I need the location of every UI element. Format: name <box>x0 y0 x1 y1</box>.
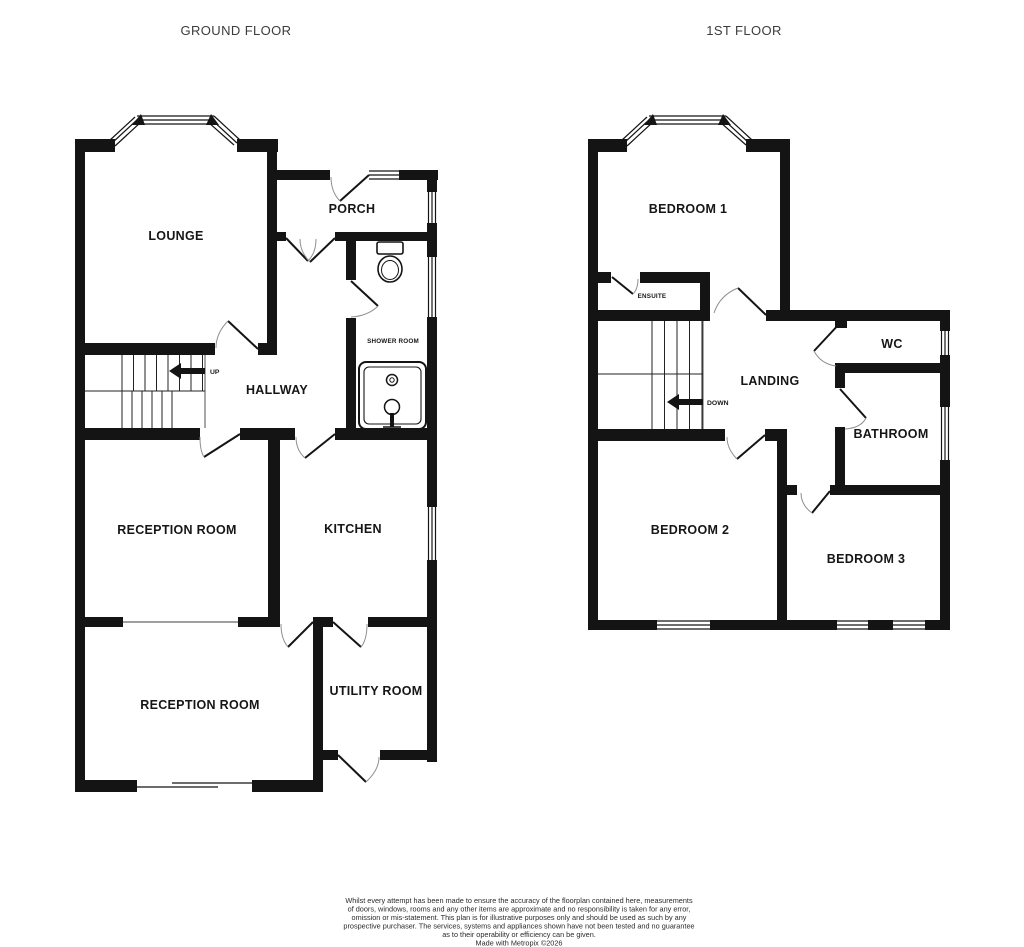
stairs-down-label: DOWN <box>707 400 729 407</box>
floorplan-page: UP <box>0 0 1024 947</box>
room-reception-1: RECEPTION ROOM <box>117 523 236 537</box>
room-reception-2: RECEPTION ROOM <box>140 698 259 712</box>
room-bedroom-2: BEDROOM 2 <box>651 523 729 537</box>
room-landing: LANDING <box>740 374 799 388</box>
room-lounge: LOUNGE <box>148 229 203 243</box>
first-floor-title: 1ST FLOOR <box>706 23 782 38</box>
toilet-icon <box>377 242 403 282</box>
disclaimer-credit: Made with Metropix ©2026 <box>476 939 563 947</box>
room-hallway: HALLWAY <box>246 383 308 397</box>
shower-tray-icon <box>359 362 426 429</box>
room-bedroom-3: BEDROOM 3 <box>827 552 905 566</box>
floorplan-canvas: UP <box>0 0 1024 947</box>
ground-floor-title: GROUND FLOOR <box>181 23 292 38</box>
room-kitchen: KITCHEN <box>324 522 382 536</box>
room-shower-room: SHOWER ROOM <box>367 338 419 345</box>
room-utility: UTILITY ROOM <box>330 684 423 698</box>
room-bathroom: BATHROOM <box>853 427 928 441</box>
page-background <box>0 0 1024 947</box>
room-ensuite: ENSUITE <box>638 293 667 300</box>
room-wc: WC <box>881 337 902 351</box>
stairs-up-label: UP <box>210 369 220 376</box>
room-bedroom-1: BEDROOM 1 <box>649 202 727 216</box>
room-porch: PORCH <box>329 202 376 216</box>
